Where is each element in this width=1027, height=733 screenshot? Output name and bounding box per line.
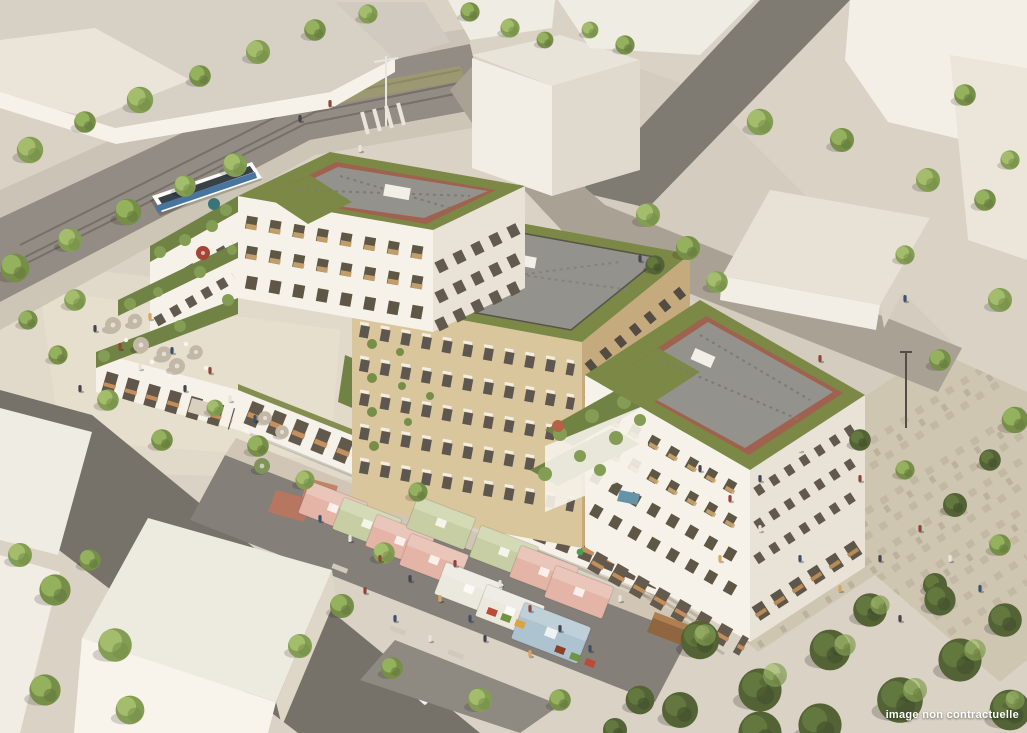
disclaimer-caption: image non contractuelle bbox=[886, 709, 1019, 721]
architectural-rendering: image non contractuelle bbox=[0, 0, 1027, 733]
rendering-canvas bbox=[0, 0, 1027, 733]
light-overlay bbox=[0, 0, 1027, 733]
